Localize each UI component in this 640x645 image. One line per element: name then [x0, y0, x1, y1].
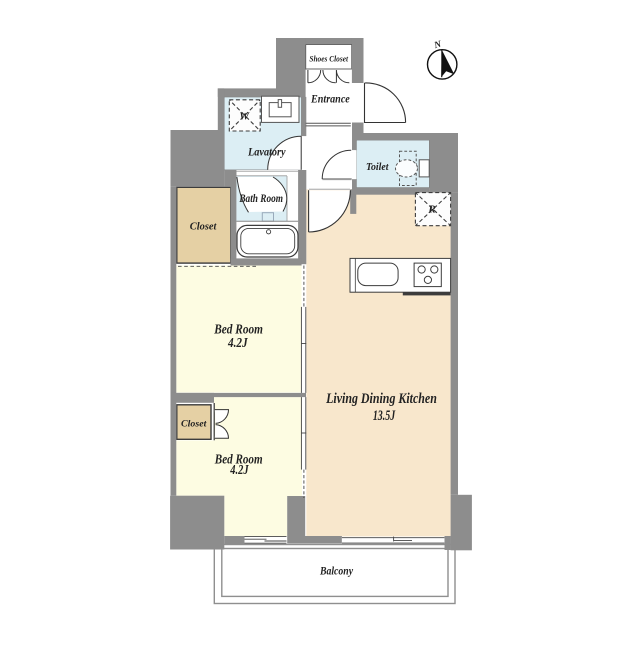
svg-text:Closet: Closet [190, 221, 218, 232]
svg-text:4.2J: 4.2J [227, 335, 249, 350]
svg-text:13.5J: 13.5J [373, 408, 396, 424]
svg-text:R: R [427, 203, 435, 215]
svg-text:Living Dining Kitchen: Living Dining Kitchen [325, 391, 436, 407]
svg-text:Entrance: Entrance [310, 92, 350, 106]
svg-text:Lavatory: Lavatory [247, 144, 286, 158]
svg-text:Closet: Closet [181, 420, 207, 430]
svg-text:W: W [239, 110, 250, 122]
svg-text:Balcony: Balcony [319, 564, 354, 577]
svg-text:Shoes Closet: Shoes Closet [309, 54, 348, 63]
svg-text:Bath Room: Bath Room [239, 192, 284, 205]
svg-text:Toilet: Toilet [366, 161, 389, 173]
svg-text:4.2J: 4.2J [229, 462, 249, 477]
